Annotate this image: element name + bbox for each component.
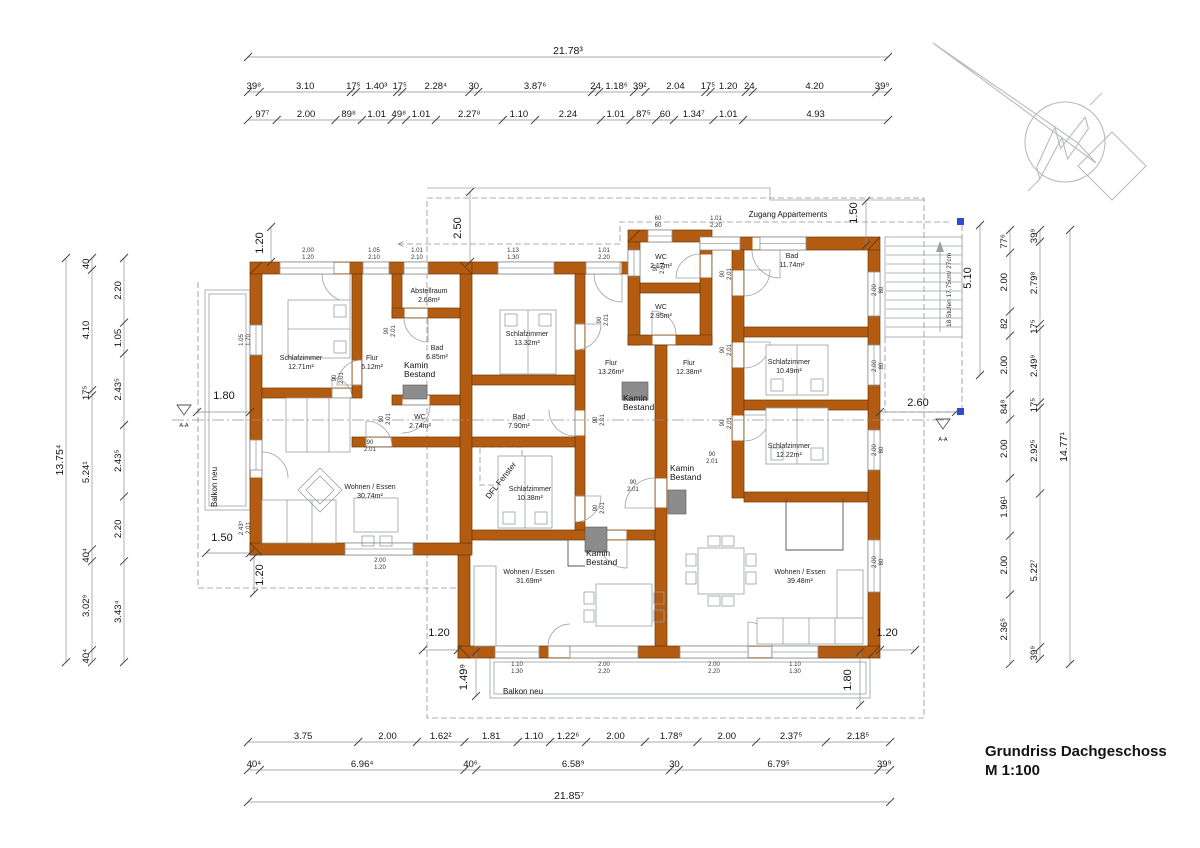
kamin-block <box>668 490 686 514</box>
kamin-block <box>403 385 427 399</box>
room-name: WC <box>655 254 667 261</box>
dimension-chains: 21.78³39⁸3.1017⁵1.40³17⁵2.28⁴303.87⁶241.… <box>54 45 1074 806</box>
dimension-value: 2.00 <box>297 109 316 120</box>
room-area: 11.74m² <box>779 262 805 269</box>
window-size-label: 1.012.20 <box>710 216 722 229</box>
room-area: 13.32m² <box>514 340 540 347</box>
dimension-value: 1.81 <box>482 731 501 742</box>
wall-segment <box>472 437 575 447</box>
svg-text:1.01: 1.01 <box>710 216 722 222</box>
dimension-value: 6.79⁵ <box>767 759 789 770</box>
svg-text:1.01: 1.01 <box>411 248 423 254</box>
door-size-label: 902.01 <box>720 344 733 356</box>
room-name: Schlafzimmer <box>768 359 811 366</box>
room-name: Abstellraum <box>411 288 448 295</box>
svg-text:90: 90 <box>332 374 338 381</box>
local-dimension: 1.20 <box>876 627 897 639</box>
window-size-label: 1.131.30 <box>507 248 519 261</box>
room-name: Wohnen / Essen <box>774 569 825 576</box>
dimension-value: 17⁵ <box>701 81 716 92</box>
local-dimension: 1.50 <box>848 202 860 223</box>
svg-text:90: 90 <box>653 264 659 271</box>
dimension-value: 5.22⁷ <box>1029 559 1040 581</box>
drawing-title: Grundriss Dachgeschoss <box>985 743 1167 760</box>
dimension-value: 1.01 <box>412 109 431 120</box>
svg-text:90: 90 <box>720 419 726 426</box>
dimension-value: 2.20 <box>113 520 124 539</box>
wall-segment <box>575 274 585 530</box>
dimension-value: 6.58⁹ <box>562 759 585 770</box>
door-size-label: 902.01 <box>593 414 606 426</box>
svg-text:80: 80 <box>879 558 885 565</box>
room-area: 31.69m² <box>516 578 542 585</box>
window-size-label: 1.101.30 <box>511 662 523 675</box>
svg-text:2.10: 2.10 <box>411 255 423 261</box>
room-name: WC <box>655 304 667 311</box>
wall-segment <box>744 327 868 337</box>
svg-text:1.30: 1.30 <box>789 669 801 675</box>
local-dimension: 2.60 <box>907 397 928 409</box>
dimension-value: 2.28⁴ <box>425 81 448 92</box>
room-name: Flur <box>683 360 696 367</box>
svg-text:2.01: 2.01 <box>391 325 397 337</box>
dimension-value: 1.05 <box>113 329 124 348</box>
dimension-value: 3.75 <box>294 731 313 742</box>
dimension-value: 6.96⁴ <box>351 759 374 770</box>
svg-text:2.01: 2.01 <box>627 487 639 493</box>
dimension-value: 77⁶ <box>999 234 1010 249</box>
svg-text:2.01: 2.01 <box>604 314 610 326</box>
wall-segment <box>744 492 868 502</box>
dimension-value: 2.20 <box>113 281 124 300</box>
door-size-label: 902.01 <box>379 413 392 425</box>
dimension-value: 1.10 <box>510 109 529 120</box>
dimension-value: 40⁶ <box>463 759 478 770</box>
dimension-value: 39⁹ <box>877 759 892 770</box>
svg-text:2.00: 2.00 <box>302 248 314 254</box>
svg-text:2.20: 2.20 <box>598 669 610 675</box>
dimension-value: 2.43⁵ <box>113 450 124 472</box>
window-size-label: 1.051.70 <box>239 334 252 346</box>
svg-text:1.20: 1.20 <box>302 255 314 261</box>
svg-text:90: 90 <box>597 316 603 323</box>
local-dimension: 1.20 <box>254 564 266 585</box>
svg-text:2.20: 2.20 <box>708 669 720 675</box>
svg-text:1.01: 1.01 <box>598 248 610 254</box>
dimension-value: 3.10 <box>296 81 315 92</box>
window-size-label: 2.001.20 <box>302 248 314 261</box>
door-size-label: 902.01 <box>593 502 606 514</box>
local-dimension: 1.20 <box>254 232 266 253</box>
dimension-value: 39² <box>633 81 647 92</box>
svg-text:2.01: 2.01 <box>600 502 606 514</box>
window-size-label: 1.101.30 <box>789 662 801 675</box>
svg-text:1.30: 1.30 <box>511 669 523 675</box>
window-size-label: 1.012.10 <box>411 248 423 261</box>
dimension-value: 17⁵ <box>1029 319 1040 334</box>
door-swing <box>676 254 700 278</box>
room-name: Flur <box>605 360 618 367</box>
dimension-value: 4.93 <box>806 109 825 120</box>
dimension-value: 2.00 <box>999 273 1010 292</box>
room-name: Wohnen / Essen <box>503 569 554 576</box>
drawing-scale: M 1:100 <box>985 762 1040 779</box>
room-name: Schlafzimmer <box>768 443 811 450</box>
window-size-label: 2.002.20 <box>598 662 610 675</box>
window-size-label: 2.001.20 <box>374 558 386 571</box>
dimension-value: 2.43⁵ <box>113 378 124 400</box>
door-swing <box>262 452 288 478</box>
dimension-value: 1.01 <box>367 109 386 120</box>
svg-text:2.01: 2.01 <box>386 413 392 425</box>
room-name: Wohnen / Essen <box>344 484 395 491</box>
room-name: Schlafzimmer <box>280 355 323 362</box>
door-swing <box>549 410 575 436</box>
wall-segment <box>640 283 700 293</box>
dimension-value: 89⁸ <box>341 109 356 120</box>
svg-text:80: 80 <box>879 362 885 369</box>
svg-text:2.01: 2.01 <box>364 447 376 453</box>
dimension-value: 87⁵ <box>636 109 651 120</box>
window-size-label: 6060 <box>655 216 662 229</box>
svg-text:2.01: 2.01 <box>727 268 733 280</box>
door-size-label: 902.01 <box>720 268 733 280</box>
dimension-value: 17⁵ <box>392 81 407 92</box>
room-area: 12.22m² <box>776 452 802 459</box>
dimension-value: 2.24 <box>559 109 578 120</box>
dimension-value: 2.37⁵ <box>780 731 802 742</box>
dimension-value: 1.01 <box>719 109 738 120</box>
svg-text:2.43⁵: 2.43⁵ <box>238 520 245 535</box>
blue-markers <box>957 218 964 415</box>
room-area: 2.95m² <box>650 313 672 320</box>
dimension-value: 40⁴ <box>81 649 92 664</box>
dimension-value: 39⁹ <box>1029 229 1040 244</box>
door-size-label: 902.01 <box>627 480 639 493</box>
dimension-value: 4.10 <box>81 321 92 340</box>
room-area: 39.48m² <box>787 578 813 585</box>
svg-text:2.00: 2.00 <box>872 360 878 372</box>
room-area: 10.49m² <box>776 368 802 375</box>
svg-text:2.01: 2.01 <box>727 417 733 429</box>
room-area: 30.74m² <box>357 493 383 500</box>
room-area: 12.71m² <box>288 364 314 371</box>
svg-text:1.70: 1.70 <box>246 334 252 346</box>
balkon-left-label: Balkon neu <box>210 467 219 507</box>
dimension-value: 13.75⁴ <box>54 445 66 476</box>
dimension-value: 1.40³ <box>366 81 388 92</box>
door-size-label: 902.01 <box>384 325 397 337</box>
dimension-value: 24 <box>590 81 601 92</box>
dimension-value: 1.22⁶ <box>557 731 579 742</box>
dimension-value: 2.00 <box>718 731 737 742</box>
door-swing <box>322 274 350 302</box>
dimension-value: 2.04 <box>666 81 685 92</box>
room-area: 2.74m² <box>409 423 431 430</box>
room-name: Schlafzimmer <box>506 331 549 338</box>
room-area: 6.12m² <box>361 364 383 371</box>
dimension-value: 2.18⁵ <box>847 731 869 742</box>
svg-text:2.01: 2.01 <box>727 344 733 356</box>
room-name: Schlafzimmer <box>509 486 552 493</box>
dimension-value: 2.00 <box>378 731 397 742</box>
svg-text:90: 90 <box>593 416 599 423</box>
floorplan-drawing: A-A A-A Zugang Appartements Balkon neu B… <box>0 0 1200 848</box>
dimension-value: 1.20 <box>719 81 738 92</box>
svg-text:1.10: 1.10 <box>789 662 801 668</box>
dimension-value: 2.36⁵ <box>999 618 1010 640</box>
dimension-value: 21.78³ <box>553 45 583 57</box>
dimension-value: 4.20 <box>805 81 824 92</box>
svg-text:2.01: 2.01 <box>339 372 345 384</box>
svg-text:2.00: 2.00 <box>872 284 878 296</box>
dimension-value: 39⁹ <box>875 81 890 92</box>
window-size-label: 2.43⁵2.01 <box>238 520 252 535</box>
wall-segment <box>458 555 470 658</box>
svg-text:90: 90 <box>384 327 390 334</box>
section-label-left: A-A <box>179 423 189 429</box>
room-area: 12.38m² <box>676 369 702 376</box>
local-dimension: 2.50 <box>452 217 464 238</box>
dimension-value: 1.01 <box>606 109 625 120</box>
dimension-value: 49⁸ <box>392 109 407 120</box>
dimension-value: 2.00 <box>606 731 625 742</box>
dimension-value: 1.78⁹ <box>660 731 683 742</box>
svg-text:60: 60 <box>655 216 662 222</box>
room-name: Flur <box>366 355 379 362</box>
kamin-label: Bestand <box>670 472 701 482</box>
dimension-value: 2.00 <box>999 356 1010 375</box>
door-swing <box>404 318 428 342</box>
local-dimension: 1.20 <box>428 627 449 639</box>
dimension-value: 3.02⁹ <box>81 594 92 617</box>
dimension-value: 1.10 <box>525 731 544 742</box>
room-name: Bad <box>431 345 444 352</box>
svg-text:1.20: 1.20 <box>374 565 386 571</box>
svg-text:2.01: 2.01 <box>660 262 666 274</box>
window-size-label: 1.012.20 <box>598 248 610 261</box>
svg-text:2.00: 2.00 <box>872 444 878 456</box>
north-arrow-icon <box>933 43 1146 200</box>
svg-text:80: 80 <box>879 446 885 453</box>
svg-text:90: 90 <box>367 440 374 446</box>
svg-text:60: 60 <box>655 223 662 229</box>
dimension-value: 17⁵ <box>1029 398 1040 413</box>
local-dimension: 1.80 <box>213 390 234 402</box>
dimension-value: 3.43⁴ <box>113 600 124 623</box>
zugang-label: Zugang Appartements <box>749 210 828 219</box>
svg-text:2.01: 2.01 <box>246 522 252 534</box>
svg-text:80: 80 <box>879 286 885 293</box>
dimension-value: 2.92⁵ <box>1029 439 1040 461</box>
local-dimension: 5.10 <box>962 267 974 288</box>
dimension-value: 1.96¹ <box>999 496 1010 518</box>
room-area: 10.38m² <box>517 495 543 502</box>
door-size-label: 902.01 <box>597 314 610 326</box>
svg-text:2.00: 2.00 <box>872 556 878 568</box>
room-area: 7.90m² <box>508 423 530 430</box>
door-swing <box>752 250 780 278</box>
wall-segment <box>472 530 655 540</box>
door-swing <box>744 270 770 296</box>
local-dimension: 1.49⁹ <box>458 664 470 690</box>
room-name: Bad <box>786 253 799 260</box>
dimension-value: 21.85⁷ <box>554 790 584 802</box>
window-size-label: 2.002.20 <box>708 662 720 675</box>
title-block: Grundriss Dachgeschoss M 1:100 <box>985 743 1167 779</box>
kamin-label: Bestand <box>623 402 654 412</box>
stairs-label: 18 Stufen 17,75cm/ 27cm <box>946 253 953 327</box>
dimension-value: 1.62² <box>430 731 452 742</box>
svg-text:2.20: 2.20 <box>598 255 610 261</box>
kamin-label: Bestand <box>586 557 617 567</box>
dimension-value: 24 <box>744 81 755 92</box>
wall-segment <box>460 274 472 543</box>
dimension-value: 40⁴ <box>247 759 262 770</box>
dimension-value: 17⁵ <box>346 81 361 92</box>
svg-text:2.01: 2.01 <box>600 414 606 426</box>
svg-text:90: 90 <box>720 346 726 353</box>
local-dimension: 1.50 <box>211 532 232 544</box>
svg-text:90: 90 <box>709 452 716 458</box>
svg-text:2.10: 2.10 <box>368 255 380 261</box>
room-area: 13.26m² <box>598 369 624 376</box>
dimension-value: 82 <box>999 318 1010 329</box>
svg-text:2.01: 2.01 <box>706 459 718 465</box>
section-label-right: A-A <box>938 437 948 443</box>
dimension-value: 14.77¹ <box>1058 432 1070 462</box>
dimension-value: 2.79⁸ <box>1029 272 1040 295</box>
room-name: WC <box>414 414 426 421</box>
dimension-value: 30 <box>468 81 479 92</box>
svg-text:2.00: 2.00 <box>598 662 610 668</box>
dimension-value: 5.24¹ <box>81 462 92 484</box>
door-swing <box>594 274 622 302</box>
svg-text:1.05: 1.05 <box>368 248 380 254</box>
wall-segment <box>472 375 575 385</box>
floorplan-canvas: { "title": {"name": "Grundriss Dachgesch… <box>0 0 1200 848</box>
door-size-label: 902.01 <box>720 417 733 429</box>
wall-segment <box>250 274 262 555</box>
svg-text:2.00: 2.00 <box>374 558 386 564</box>
dimension-value: 1.34⁷ <box>683 109 705 120</box>
dimension-value: 84⁸ <box>999 400 1010 415</box>
dimension-value: 30 <box>669 759 680 770</box>
window-size-label: 1.052.10 <box>368 248 380 261</box>
room-name: Bad <box>513 414 526 421</box>
door-size-label: 902.01 <box>706 452 718 465</box>
dimension-value: 40 <box>81 259 92 270</box>
dimension-value: 2.00 <box>999 439 1010 458</box>
svg-text:90: 90 <box>720 270 726 277</box>
dimension-value: 1.18⁶ <box>605 81 627 92</box>
svg-text:90: 90 <box>630 480 637 486</box>
dimension-value: 2.27⁸ <box>458 109 481 120</box>
room-area: 2.68m² <box>418 297 440 304</box>
dimension-value: 3.87⁶ <box>524 81 546 92</box>
kamin-label: Bestand <box>404 369 435 379</box>
svg-text:1.05: 1.05 <box>239 334 245 346</box>
door-size-label: 902.01 <box>332 372 345 384</box>
svg-text:90: 90 <box>379 415 385 422</box>
dimension-value: 97⁷ <box>255 109 270 120</box>
svg-text:2.20: 2.20 <box>710 223 722 229</box>
svg-text:90: 90 <box>593 504 599 511</box>
dimension-value: 39⁸ <box>247 81 262 92</box>
dimension-value: 40⁴ <box>81 548 92 563</box>
dimension-value: 17⁵ <box>81 385 92 400</box>
bed <box>288 300 350 358</box>
door-swing <box>548 624 570 646</box>
balkon-bottom-label: Balkon neu <box>503 687 543 696</box>
dimension-value: 60 <box>660 109 671 120</box>
svg-text:1.30: 1.30 <box>507 255 519 261</box>
local-dimension: 1.80 <box>842 669 854 690</box>
svg-text:1.10: 1.10 <box>511 662 523 668</box>
dimension-value: 2.49⁹ <box>1029 354 1040 377</box>
svg-text:1.13: 1.13 <box>507 248 519 254</box>
dimension-value: 2.00 <box>999 556 1010 575</box>
room-area: 6.85m² <box>426 354 448 361</box>
dimension-value: 39⁹ <box>1029 646 1040 661</box>
svg-text:2.00: 2.00 <box>708 662 720 668</box>
